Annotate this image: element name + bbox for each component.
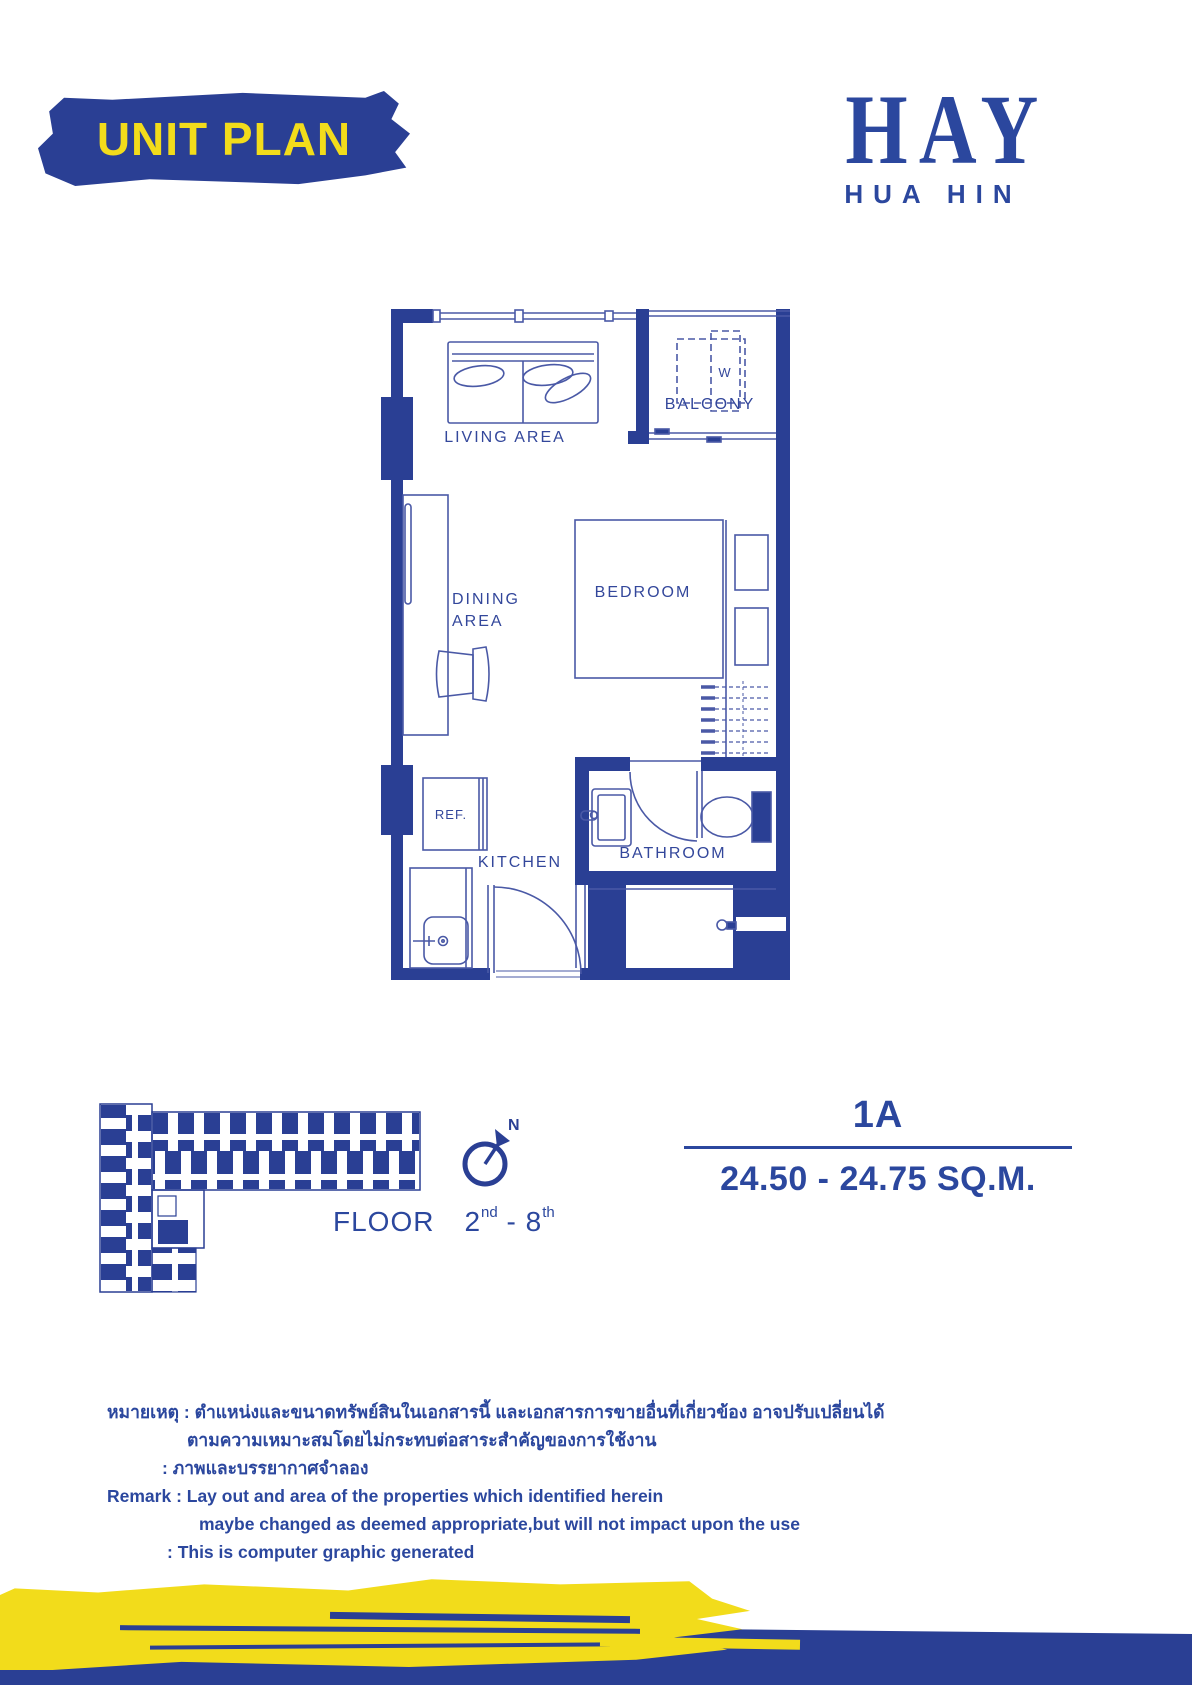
label-fridge: REF.: [435, 807, 467, 822]
floor-label: FLOOR: [333, 1206, 434, 1237]
label-washer: W: [718, 365, 731, 380]
floor-to-suffix: th: [542, 1204, 555, 1221]
floor-to: 8: [526, 1206, 543, 1237]
dining-chair: [437, 647, 490, 701]
remark-line-en-3: : This is computer graphic generated: [107, 1538, 907, 1566]
compass: N: [452, 1116, 526, 1192]
living-window: [433, 310, 636, 322]
label-balcony: BALCONY: [665, 396, 755, 413]
title-banner: UNIT PLAN: [38, 90, 410, 187]
wardrobe: [701, 681, 769, 757]
unit-code: 1A: [684, 1094, 1072, 1137]
floor-from: 2: [464, 1206, 481, 1237]
dining-desk: [403, 495, 448, 735]
entrance-door: [488, 885, 581, 977]
sofa: [448, 342, 598, 423]
remark-line-thai-2: ตามความเหมาะสมโดยไม่กระทบต่อสาระสำคัญของ…: [107, 1426, 907, 1454]
unit-divider: [684, 1146, 1072, 1149]
unit-plan-page: UNIT PLAN HAY HUA HIN: [0, 0, 1192, 1685]
toilet: [701, 792, 771, 842]
unit-info: 1A 24.50 - 24.75 SQ.M.: [684, 1094, 1072, 1199]
wall-niche: [736, 917, 786, 931]
remark-line-en-2: maybe changed as deemed appropriate,but …: [107, 1510, 907, 1538]
floor-separator: -: [507, 1206, 517, 1237]
remark-line-thai-3: : ภาพและบรรยากาศจำลอง: [107, 1454, 907, 1482]
floor-from-suffix: nd: [481, 1204, 498, 1221]
compass-north-label: N: [508, 1117, 520, 1134]
floor-plan-drawing: LIVING AREA BALCONY W DINING AREA BEDROO…: [355, 285, 795, 985]
key-plan-wings: [100, 1104, 420, 1292]
nightstands: [735, 535, 768, 665]
door-handle: [717, 920, 736, 930]
floor-range: FLOOR2nd - 8th: [333, 1206, 555, 1238]
brand-logo: HAY HUA HIN: [823, 84, 1033, 210]
building-key-plan: [96, 1098, 426, 1298]
label-kitchen: KITCHEN: [478, 854, 562, 871]
label-bedroom: BEDROOM: [595, 584, 692, 601]
label-bathroom: BATHROOM: [619, 845, 726, 862]
unit-floor-plan: LIVING AREA BALCONY W DINING AREA BEDROO…: [355, 285, 795, 985]
kitchen-sink: [413, 917, 468, 964]
remarks-block: หมายเหตุ : ตำแหน่งและขนาดทรัพย์สินในเอกส…: [107, 1398, 907, 1566]
label-living-area: LIVING AREA: [444, 429, 566, 446]
unit-area: 24.50 - 24.75 SQ.M.: [684, 1160, 1072, 1199]
page-title: UNIT PLAN: [97, 112, 351, 166]
bathroom-door: [630, 761, 702, 841]
remark-line-thai-1: หมายเหตุ : ตำแหน่งและขนาดทรัพย์สินในเอกส…: [107, 1398, 907, 1426]
remark-line-en-1: Remark : Lay out and area of the propert…: [107, 1482, 907, 1510]
label-dining-area: AREA: [452, 613, 504, 630]
label-dining: DINING: [452, 591, 520, 608]
brand-name: HAY: [845, 84, 1024, 176]
